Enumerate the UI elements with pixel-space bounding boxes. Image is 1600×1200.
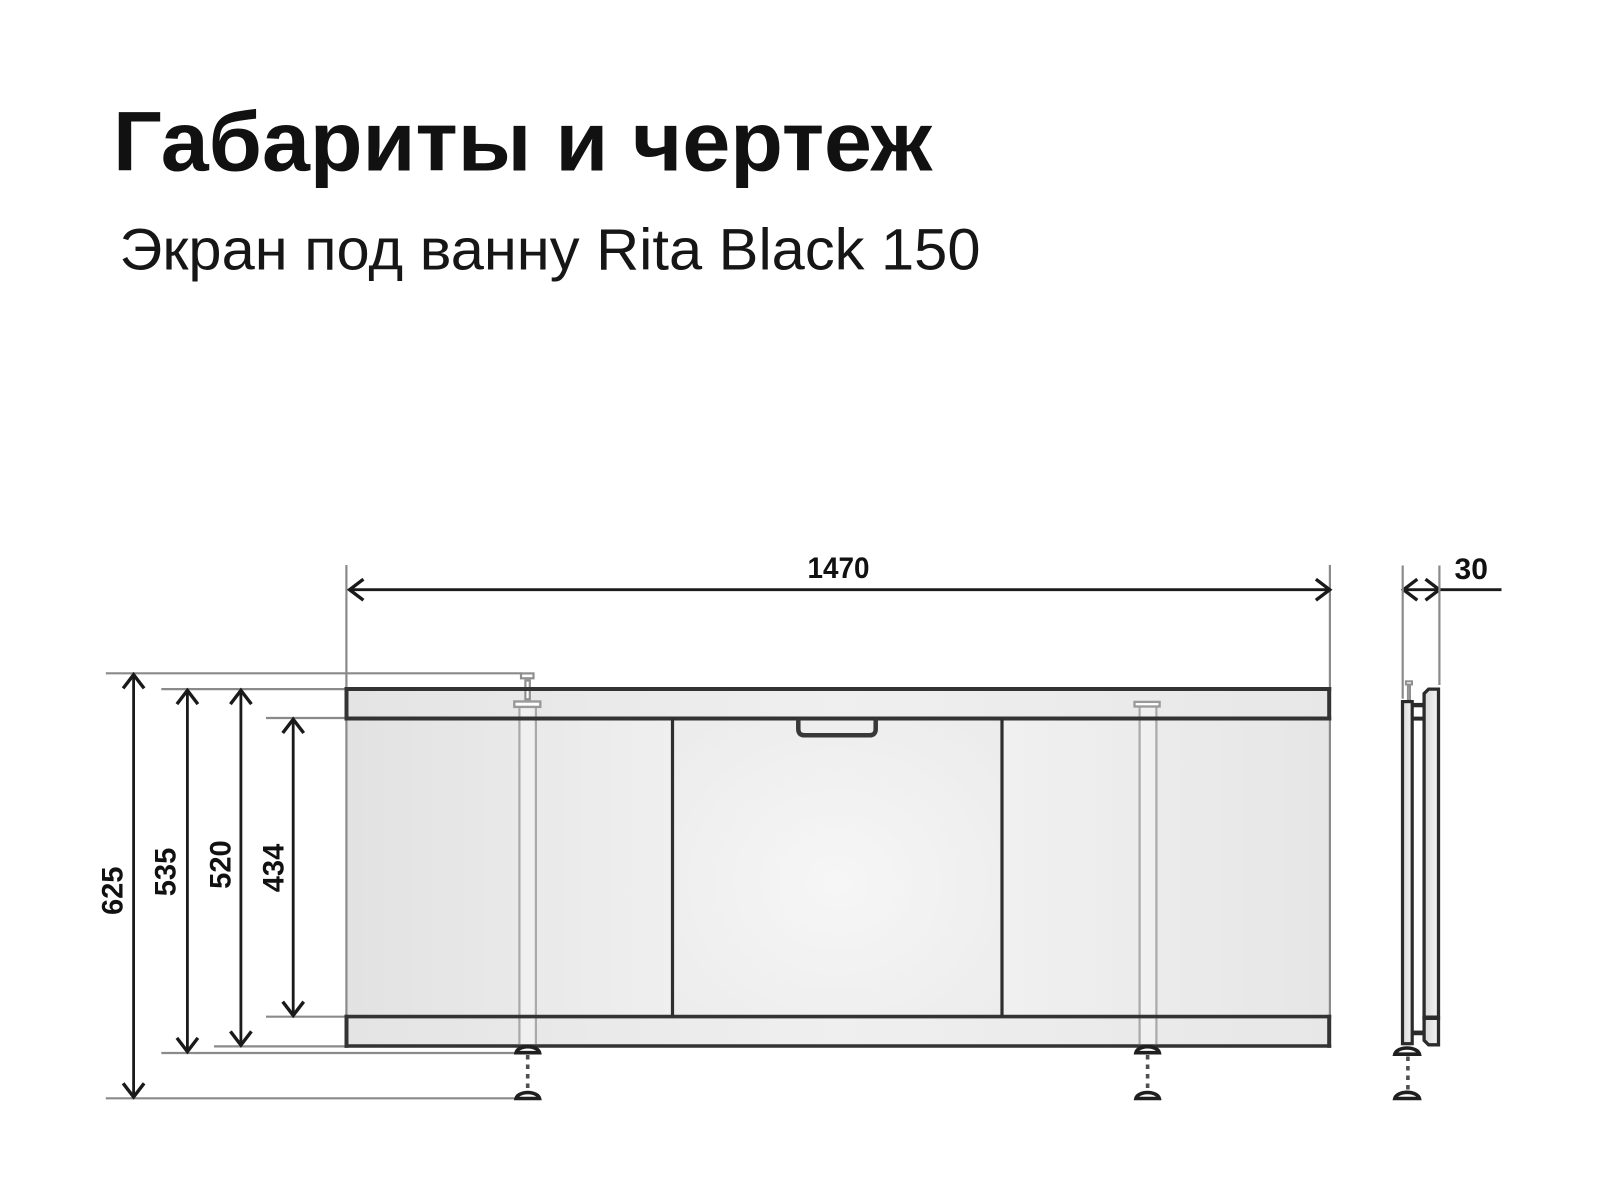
svg-text:535: 535: [149, 848, 182, 897]
svg-text:30: 30: [1455, 553, 1488, 586]
svg-text:Экран под ванну Rita Black 150: Экран под ванну Rita Black 150: [120, 218, 981, 283]
svg-text:520: 520: [204, 840, 237, 889]
svg-text:Габариты и чертеж: Габариты и чертеж: [113, 95, 933, 189]
svg-text:1470: 1470: [808, 552, 870, 585]
svg-text:625: 625: [96, 867, 129, 916]
svg-text:434: 434: [257, 843, 290, 892]
